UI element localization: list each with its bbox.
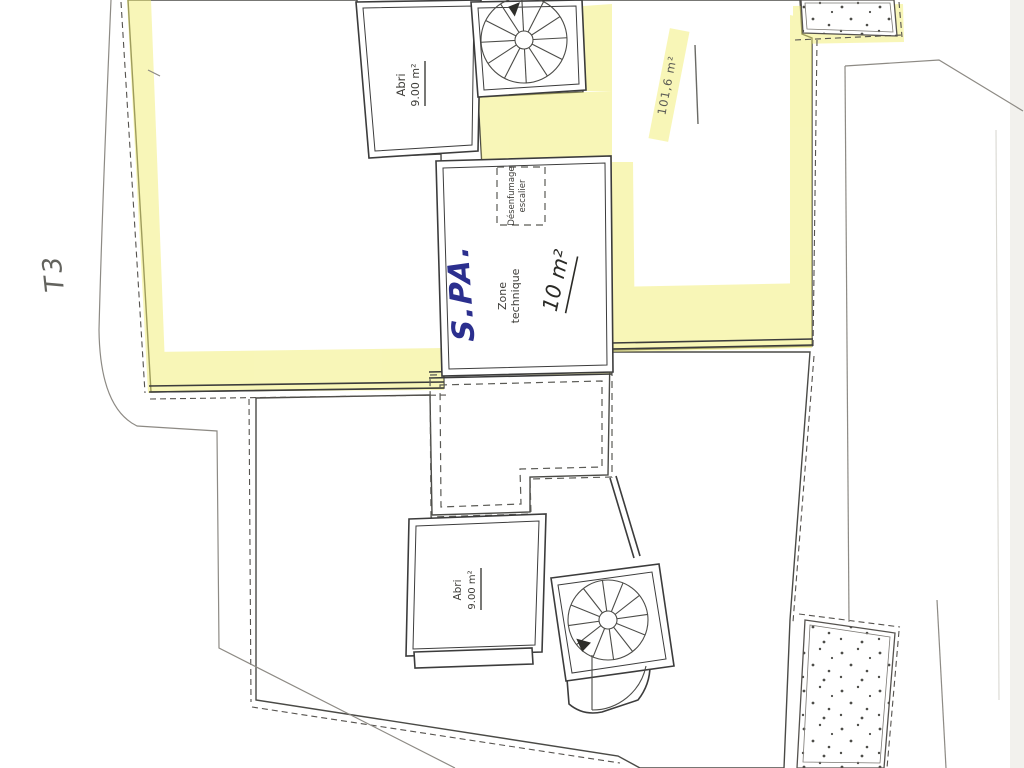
label-abri-top-line1: Abri <box>394 73 408 96</box>
label-abri-bottom-line2: 9.00 m² <box>467 570 478 609</box>
label-abri-top-line2: 9.00 m² <box>409 63 422 106</box>
label-smoke-vent-line2: escalier <box>518 179 528 212</box>
scan-edge-shade <box>1010 0 1024 768</box>
label-smoke-vent-line1: Désenfumage <box>506 166 517 225</box>
label-spa: S.PA. <box>441 243 483 341</box>
highlight-pocket-upper <box>583 4 612 91</box>
plan-canvas: Abri 9.00 m² Abri 9.00 m² Zone technique… <box>0 0 1024 768</box>
abri-bottom-ledge <box>414 648 533 668</box>
scanned-floor-plan: Abri 9.00 m² Abri 9.00 m² Zone technique… <box>0 0 1024 768</box>
gravel-area-bottom <box>797 620 895 768</box>
label-spa-text: S.PA. <box>441 243 483 341</box>
highlight-topright-right-band <box>790 15 812 348</box>
label-handwritten-note: T3 <box>37 252 71 293</box>
highlight-pocket <box>479 91 612 166</box>
label-zone-line1: Zone <box>496 282 509 310</box>
label-abri-bottom-line1: Abri <box>452 579 464 600</box>
label-zone-line2: technique <box>509 268 522 323</box>
